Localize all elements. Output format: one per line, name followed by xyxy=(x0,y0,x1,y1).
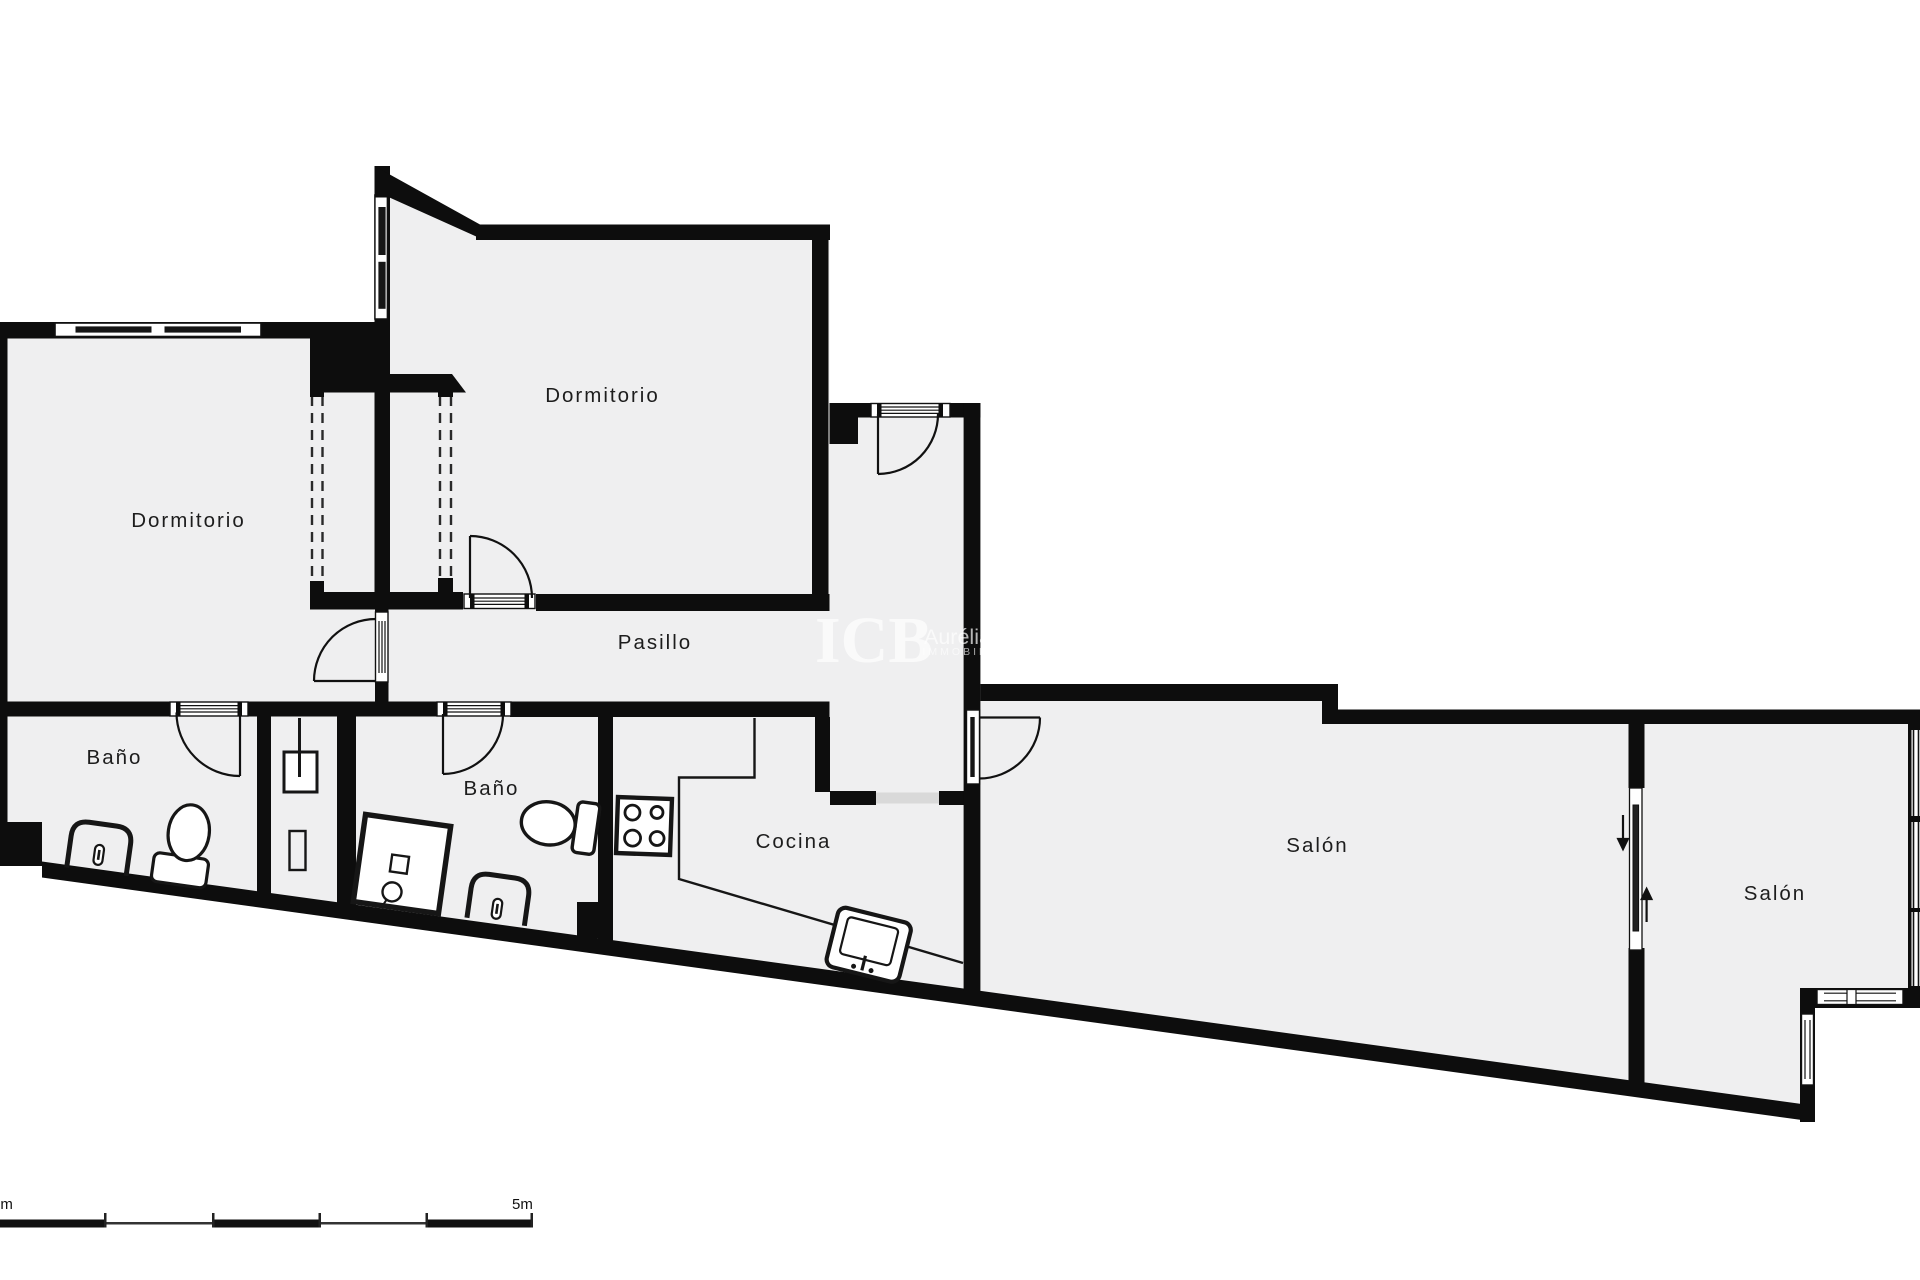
svg-text:Dormitorio: Dormitorio xyxy=(545,384,660,407)
svg-text:IMMOBILI: IMMOBILI xyxy=(923,646,994,658)
svg-text:0m: 0m xyxy=(0,1196,13,1213)
svg-text:Baño: Baño xyxy=(87,746,143,769)
svg-text:ICB: ICB xyxy=(815,604,932,677)
svg-text:Cocina: Cocina xyxy=(756,830,832,853)
svg-text:Pasillo: Pasillo xyxy=(618,631,692,654)
svg-text:Baño: Baño xyxy=(464,777,520,800)
svg-text:Salón: Salón xyxy=(1286,834,1348,857)
svg-text:Dormitorio: Dormitorio xyxy=(131,509,246,532)
svg-text:5m: 5m xyxy=(512,1196,533,1213)
svg-text:Salón: Salón xyxy=(1744,882,1806,905)
